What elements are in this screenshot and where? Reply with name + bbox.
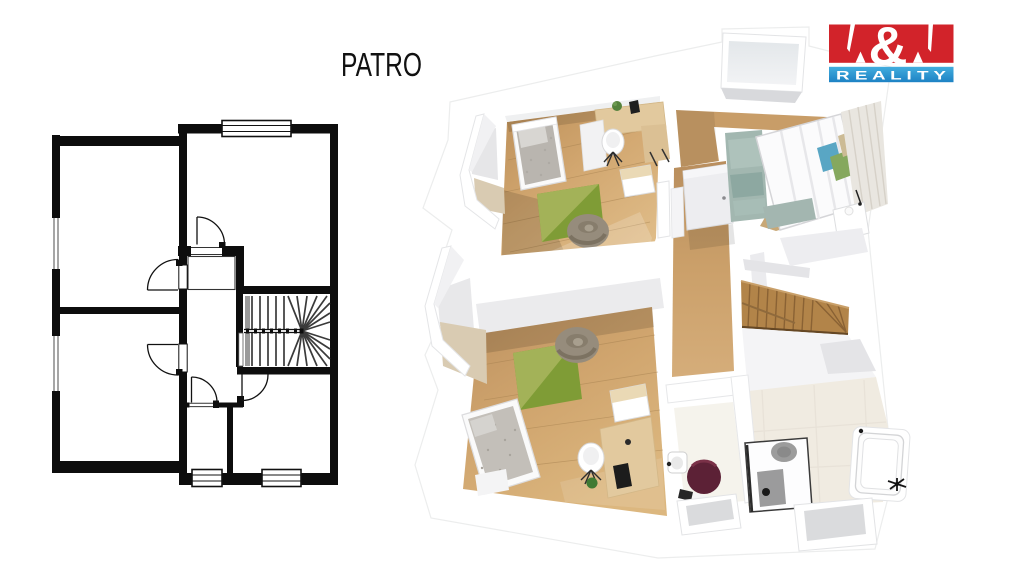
svg-text:R E A L I T Y: R E A L I T Y bbox=[836, 68, 946, 82]
svg-text:PATRO: PATRO bbox=[341, 46, 422, 83]
